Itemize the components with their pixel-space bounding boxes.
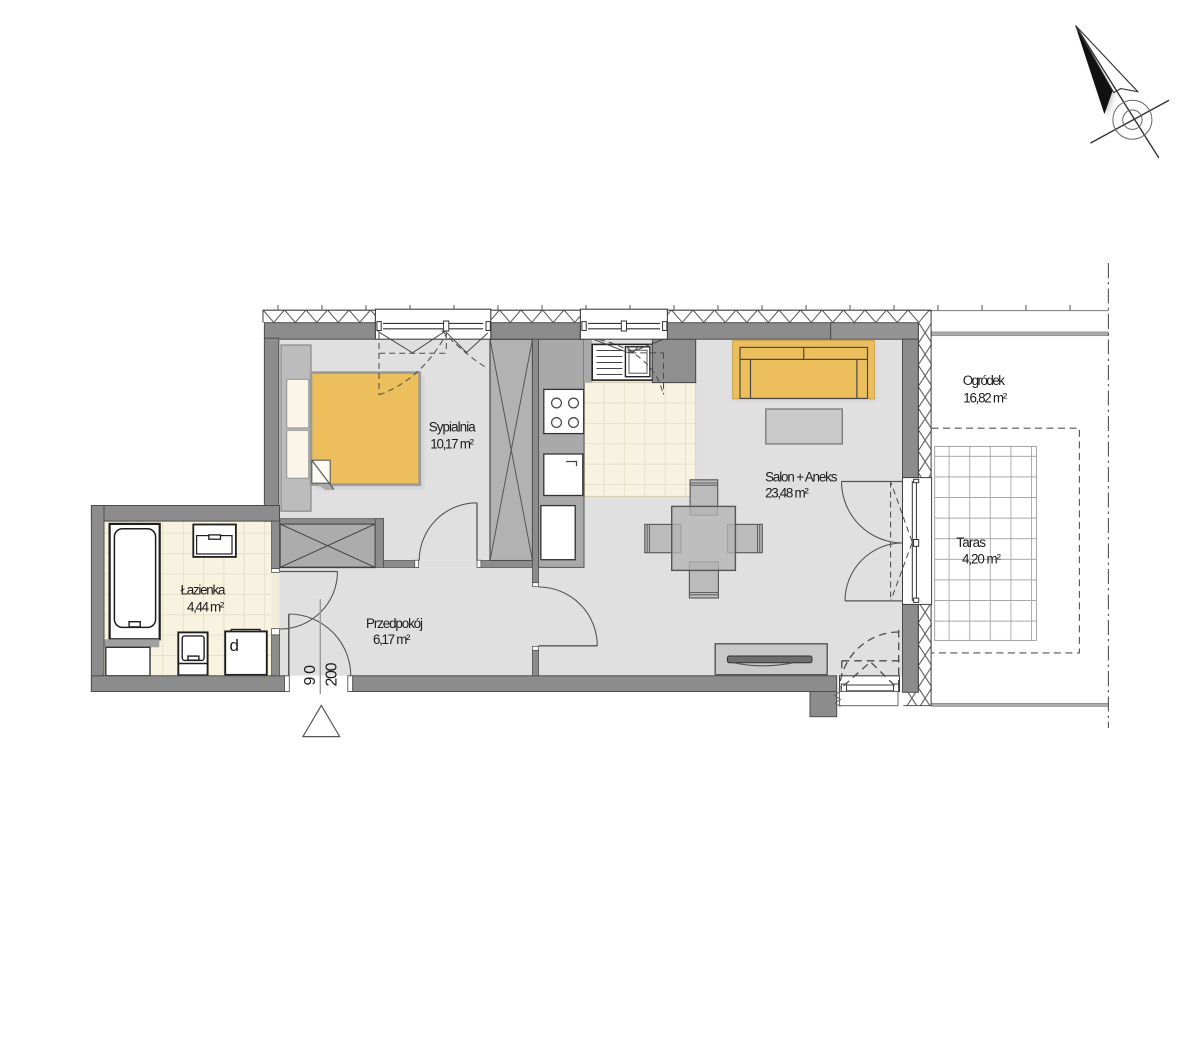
svg-text:4,44 m²: 4,44 m²	[187, 600, 225, 615]
svg-text:Sypialnia: Sypialnia	[429, 420, 477, 435]
svg-text:Salon + Aneks: Salon + Aneks	[765, 469, 838, 484]
svg-text:10,17 m²: 10,17 m²	[430, 436, 474, 451]
svg-text:16,82 m²: 16,82 m²	[963, 390, 1007, 405]
svg-text:200: 200	[323, 662, 340, 686]
svg-text:Łazienka: Łazienka	[181, 583, 226, 598]
svg-text:d: d	[230, 636, 239, 655]
svg-text:4,20 m²: 4,20 m²	[962, 551, 1002, 566]
svg-text:Przedpokój: Przedpokój	[366, 616, 423, 631]
svg-text:6,17 m²: 6,17 m²	[373, 632, 411, 647]
svg-text:Taras: Taras	[956, 535, 986, 550]
svg-text:Ogródek: Ogródek	[963, 373, 1006, 388]
svg-text:23,48 m²: 23,48 m²	[765, 486, 809, 501]
